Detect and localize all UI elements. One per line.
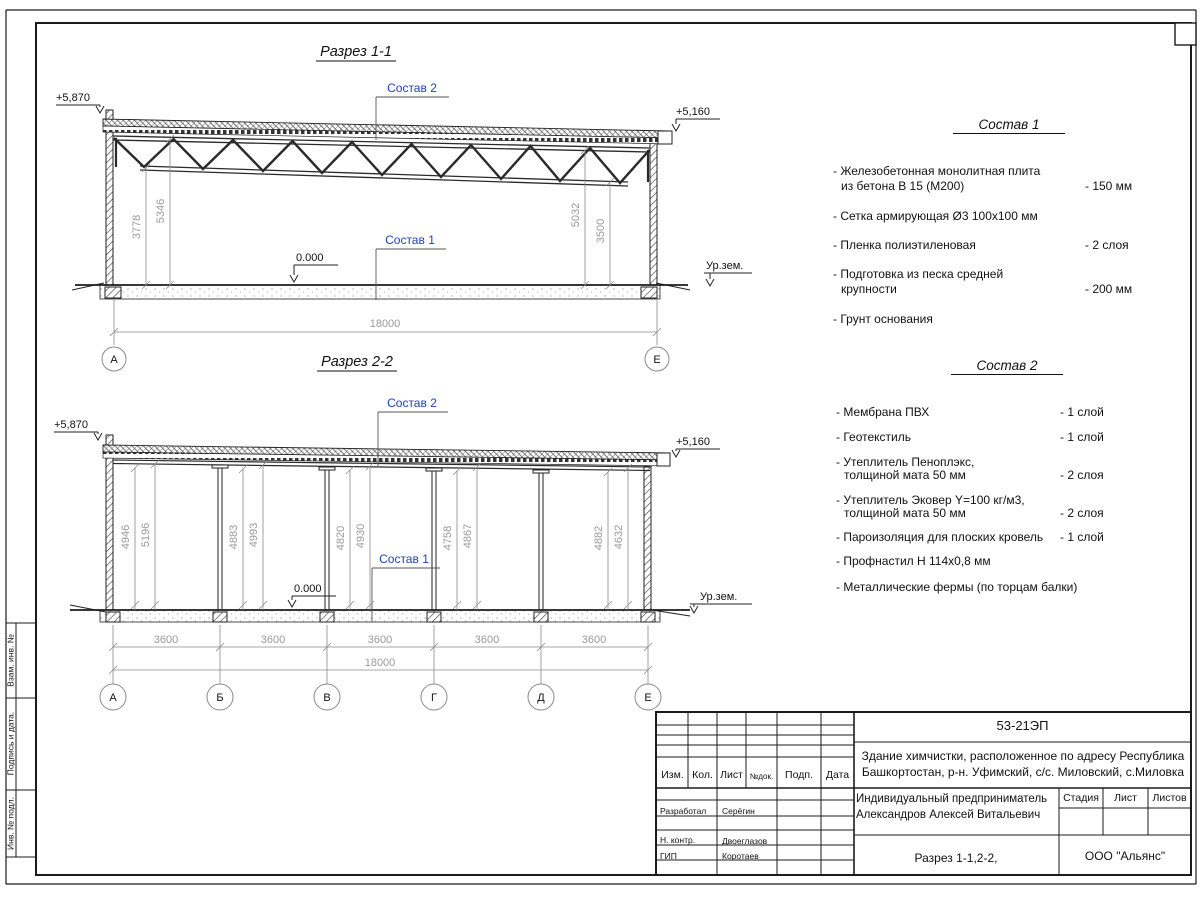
sostav1-item5-line1: - Грунт основания (833, 312, 933, 326)
dim-4883: 4883 (228, 525, 240, 549)
elev-low-s2: +5,160 (676, 436, 710, 448)
foundation-right (641, 287, 657, 298)
dim-total-s2: 18000 (365, 657, 396, 669)
axis-e-s2: Е (644, 692, 651, 704)
client-line2: Александров Алексей Витальевич (856, 808, 1058, 822)
foundation-left (105, 287, 121, 298)
role-gip: ГИП (660, 849, 677, 863)
col-izm: Изм. (657, 768, 688, 782)
name-ncontrol: Двоеглазов (722, 834, 767, 848)
span-3: 3600 (368, 634, 392, 646)
roof-end-cap-s2 (657, 453, 670, 466)
sostav2-item4-line2: толщиной мата 50 мм (844, 506, 966, 520)
col-podp: Подп. (777, 768, 821, 782)
sostav2-item7-line1: - Металлические фермы (по торцам балки) (836, 580, 1077, 594)
floor-slab-s2 (100, 610, 660, 622)
role-developed: Разработал (660, 804, 706, 818)
dim-4820: 4820 (335, 526, 347, 550)
dim-4632: 4632 (613, 525, 625, 549)
col-data: Дата (821, 768, 854, 782)
dim-3500: 3500 (595, 219, 607, 243)
axis-v-s2: В (323, 692, 330, 704)
dim-4758: 4758 (442, 526, 454, 550)
col-ndok: №док. (746, 770, 777, 784)
col-list: Лист (717, 768, 746, 782)
span-4: 3600 (475, 634, 499, 646)
sostav2-item4-line1: - Утеплитель Эковер Y=100 кг/м3, (836, 493, 1025, 507)
sostav1-item1-value: - 150 мм (1085, 179, 1132, 193)
dim-4930: 4930 (355, 524, 367, 548)
margin-cell-vzam: Взам. инв. № (6, 624, 17, 698)
sostav2-item3-value: - 2 слоя (1060, 468, 1104, 482)
sheet-name: Разрез 1-1,2-2, (856, 851, 1056, 865)
ground-level-s2: Ур.зем. (700, 591, 737, 603)
sostav1-item4-line2: крупности (841, 282, 897, 296)
ref-sostav2-s1: Состав 2 (387, 81, 437, 95)
sostav1-title: Состав 1 (953, 118, 1065, 134)
dim-3778: 3778 (131, 215, 143, 239)
elev-high-s2: +5,870 (54, 419, 88, 431)
floor-slab (100, 285, 660, 299)
section-1-1: Разрез 1-1 (56, 44, 752, 371)
sostav2-item5-value: - 1 слой (1060, 530, 1104, 544)
dim-total-s1: 18000 (370, 318, 401, 330)
span-5: 3600 (582, 634, 606, 646)
sostav1-item3-value: - 2 слоя (1085, 238, 1129, 252)
left-wall-s2 (106, 435, 113, 610)
sheet-header: Лист (1103, 791, 1148, 805)
margin-cell-podpis: Подпись и дата. (6, 698, 17, 790)
axis-b-s2: Б (216, 692, 223, 704)
sostav2-item3-line1: - Утеплитель Пеноплэкс, (836, 455, 974, 469)
ref-sostav2-s2: Состав 2 (387, 396, 437, 410)
col-kol: Кол. (688, 768, 717, 782)
elev-low-s1: +5,160 (676, 106, 710, 118)
sostav2-title: Состав 2 (951, 359, 1063, 375)
sostav1-item1-line1: - Железобетонная монолитная плита (833, 164, 1040, 178)
truss (113, 136, 650, 186)
sostav1-item2-line1: - Сетка армирующая Ø3 100х100 мм (833, 209, 1038, 223)
object-name-line1: Здание химчистки, расположенное по адрес… (858, 749, 1188, 763)
ground-level-s1: Ур.зем. (706, 260, 743, 272)
section2-title: Разрез 2-2 (321, 354, 393, 370)
dim-4867: 4867 (462, 524, 474, 548)
sostav2-item4-value: - 2 слоя (1060, 506, 1104, 520)
section-2-2: Разрез 2-2 (54, 354, 752, 710)
span-2: 3600 (261, 634, 285, 646)
axis-g-s2: Г (431, 692, 437, 704)
ref-sostav1-s1: Состав 1 (385, 233, 435, 247)
axis-e-s1: Е (653, 354, 660, 366)
columns-s2 (212, 465, 549, 610)
zero-level-s2: 0.000 (294, 583, 322, 595)
corner-stamp-box (1175, 23, 1196, 45)
sostav2-item2-value: - 1 слой (1060, 430, 1104, 444)
sostav2-item3-line2: толщиной мата 50 мм (844, 468, 966, 482)
zero-level-s1: 0.000 (296, 252, 324, 264)
org-name: ООО "Альянс" (1059, 849, 1191, 863)
height-dims-s2 (131, 460, 632, 610)
dim-5196: 5196 (140, 523, 152, 547)
sostav2-item5-line1: - Пароизоляция для плоских кровель (836, 530, 1043, 544)
axis-circles-s2 (100, 684, 661, 710)
sostav1-item1-line2: из бетона В 15 (М200) (841, 179, 964, 193)
sostav2-item2-line1: - Геотекстиль (836, 430, 911, 444)
sostav2-item1-line1: - Мембрана ПВХ (836, 405, 929, 419)
name-developed: Серёгин (722, 804, 755, 818)
margin-cell-inv: Инв. № подл. (6, 790, 17, 858)
drawing-sheet: Разрез 1-1 (0, 0, 1200, 900)
ref-leaders-s2 (372, 412, 448, 622)
roof-end-cap (658, 131, 672, 144)
sostav1-item4-value: - 200 мм (1085, 282, 1132, 296)
span-1: 3600 (154, 634, 178, 646)
axis-a-s1: А (110, 354, 118, 366)
elev-high-s1: +5,870 (56, 92, 90, 104)
right-wall-s2 (644, 466, 651, 610)
dim-4946: 4946 (120, 525, 132, 549)
right-wall (650, 142, 657, 285)
doc-number: 53-21ЭП (854, 719, 1191, 733)
sostav2-item6-line1: - Профнастил Н 114х0,8 мм (836, 554, 991, 568)
sostav1-item3-line1: - Пленка полиэтиленовая (833, 238, 976, 252)
ref-sostav1-s2: Состав 1 (379, 552, 429, 566)
sostav2-item1-value: - 1 слой (1060, 405, 1104, 419)
section1-title: Разрез 1-1 (320, 44, 392, 60)
role-ncontrol: Н. контр. (660, 833, 695, 847)
name-gip: Коротаев (722, 849, 759, 863)
dim-4882: 4882 (593, 526, 605, 550)
dim-4993: 4993 (248, 523, 260, 547)
sheets-header: Листов (1148, 791, 1191, 805)
object-name-line2: Башкортостан, р-н. Уфимский, с/с. Миловс… (858, 765, 1188, 779)
axis-a-s2: А (109, 692, 117, 704)
left-wall (106, 110, 113, 285)
dim-5346: 5346 (155, 199, 167, 223)
axis-d-s2: Д (537, 692, 545, 704)
stage-header: Стадия (1059, 791, 1103, 805)
sostav1-item4-line1: - Подготовка из песка средней (833, 267, 1003, 281)
client-line1: Индивидуальный предприниматель (856, 792, 1058, 806)
dim-5032: 5032 (570, 203, 582, 227)
